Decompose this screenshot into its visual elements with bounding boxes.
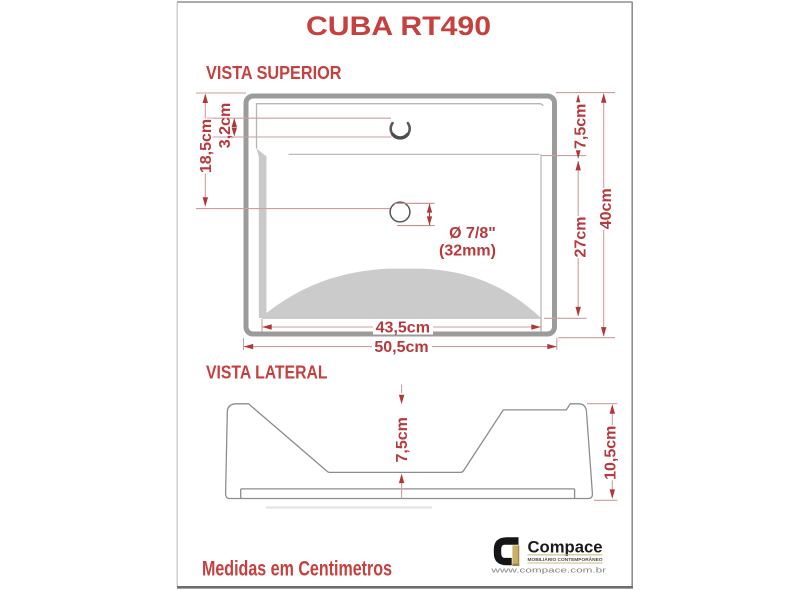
svg-text:7,5cm: 7,5cm (573, 104, 590, 149)
svg-text:(32mm): (32mm) (439, 243, 496, 260)
svg-text:40cm: 40cm (598, 188, 615, 229)
svg-text:CUBA RT490: CUBA RT490 (306, 11, 491, 41)
svg-text:Medidas em Centimetros: Medidas em Centimetros (202, 557, 392, 580)
svg-text:43,5cm: 43,5cm (376, 319, 430, 336)
svg-text:Compace: Compace (528, 537, 603, 556)
svg-text:VISTA LATERAL: VISTA LATERAL (206, 362, 328, 383)
svg-text:www.compace.com.br: www.compace.com.br (490, 566, 607, 575)
svg-text:7,5cm: 7,5cm (394, 417, 411, 462)
svg-text:Ø 7/8": Ø 7/8" (449, 225, 496, 242)
svg-text:50,5cm: 50,5cm (374, 339, 428, 356)
svg-text:10,5cm: 10,5cm (602, 426, 619, 480)
svg-text:VISTA SUPERIOR: VISTA SUPERIOR (206, 62, 342, 83)
svg-text:27cm: 27cm (573, 217, 590, 258)
svg-text:MOBILIÁRIO CONTEMPORÂNEO: MOBILIÁRIO CONTEMPORÂNEO (528, 556, 603, 562)
svg-text:18,5cm: 18,5cm (198, 119, 215, 173)
svg-text:3,2cm: 3,2cm (217, 103, 234, 148)
